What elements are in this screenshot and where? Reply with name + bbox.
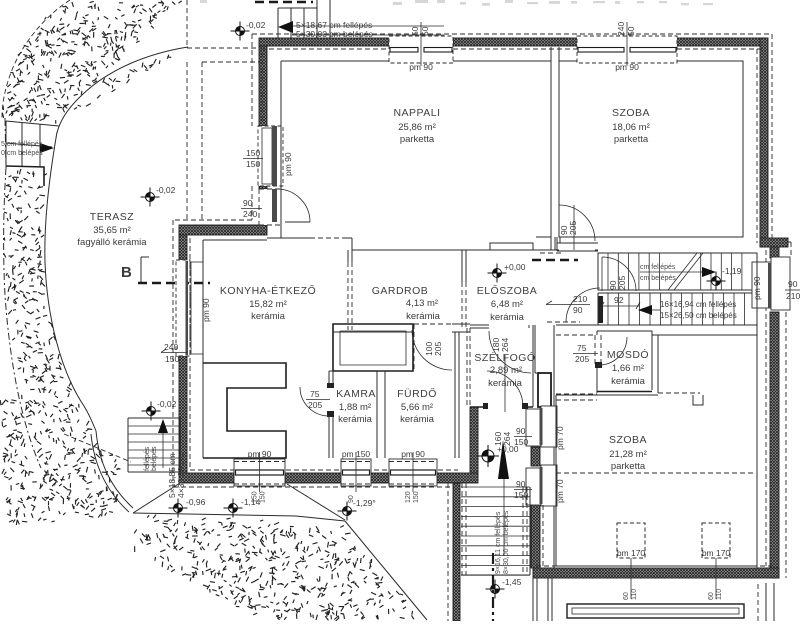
svg-text:-0,96: -0,96 [186, 497, 206, 507]
svg-text:KONYHA-ÉTKEZŐ: KONYHA-ÉTKEZŐ [220, 283, 316, 297]
svg-text:205: 205 [575, 354, 589, 364]
svg-text:4×30,00 cm: 4×30,00 cm [176, 453, 186, 498]
svg-text:SZOBA: SZOBA [609, 434, 647, 446]
svg-text:bm 170: bm 170 [702, 548, 731, 558]
svg-text:60: 60 [623, 592, 630, 600]
svg-text:bm 170: bm 170 [617, 548, 646, 558]
svg-text:kerámia: kerámia [251, 311, 286, 322]
svg-text:TERASZ: TERASZ [90, 211, 135, 223]
svg-text:210: 210 [786, 291, 800, 301]
svg-text:pm 90: pm 90 [409, 62, 433, 72]
svg-text:1,66 m²: 1,66 m² [612, 363, 644, 374]
svg-text:90: 90 [516, 479, 526, 489]
svg-text:21,28 m²: 21,28 m² [609, 449, 647, 460]
svg-text:60: 60 [708, 592, 715, 600]
svg-text:120: 120 [405, 491, 412, 503]
svg-text:parketta: parketta [400, 134, 435, 145]
svg-text:205: 205 [568, 221, 578, 235]
svg-text:75: 75 [577, 343, 587, 353]
svg-text:-0,02: -0,02 [156, 185, 176, 195]
svg-text:150: 150 [246, 148, 260, 158]
svg-text:pm 90: pm 90 [615, 62, 639, 72]
svg-text:-1,29°: -1,29° [353, 498, 376, 508]
svg-text:50: 50 [420, 26, 430, 36]
svg-text:50: 50 [410, 26, 420, 36]
svg-text:-0,02: -0,02 [157, 399, 177, 409]
svg-text:0 cm belépés: 0 cm belépés [1, 150, 43, 157]
svg-text:75: 75 [310, 389, 320, 399]
svg-text:SZOBA: SZOBA [612, 107, 650, 119]
svg-text:90: 90 [516, 426, 526, 436]
svg-text:90: 90 [573, 305, 583, 315]
svg-text:fellépés: fellépés [144, 446, 151, 471]
svg-text:pm 90: pm 90 [283, 152, 293, 176]
svg-text:cm belépés: cm belépés [640, 275, 676, 282]
svg-text:90: 90 [788, 279, 798, 289]
svg-text:150: 150 [246, 159, 260, 169]
svg-text:kerámia: kerámia [338, 414, 373, 425]
svg-text:205: 205 [433, 342, 443, 356]
svg-text:-1,45: -1,45 [502, 577, 522, 587]
svg-text:FÜRDŐ: FÜRDŐ [397, 386, 437, 400]
svg-text:kerámia: kerámia [400, 414, 435, 425]
svg-text:parketta: parketta [614, 134, 649, 145]
svg-text:18,06 m²: 18,06 m² [612, 122, 650, 133]
svg-text:5 cm fellépés: 5 cm fellépés [1, 141, 43, 148]
svg-text:210: 210 [573, 294, 587, 304]
svg-text:KAMRA: KAMRA [336, 388, 376, 400]
svg-text:35,65 m²: 35,65 m² [93, 225, 131, 236]
svg-text:6,48 m²: 6,48 m² [491, 299, 523, 310]
svg-text:kerámia: kerámia [406, 311, 441, 322]
svg-text:1,88 m²: 1,88 m² [339, 402, 371, 413]
svg-text:+0,00: +0,00 [504, 262, 526, 272]
svg-text:50: 50 [626, 26, 636, 36]
svg-text:-1,14: -1,14 [241, 497, 261, 507]
svg-text:8×30,00 cm belépés: 8×30,00 cm belépés [503, 510, 510, 574]
svg-text:205: 205 [308, 400, 322, 410]
svg-text:4,13 m²: 4,13 m² [406, 298, 438, 309]
svg-text:90: 90 [243, 198, 253, 208]
svg-text:cm fellépés: cm fellépés [640, 264, 676, 271]
svg-text:kerámia: kerámia [611, 376, 646, 387]
svg-text:kerámia: kerámia [490, 312, 525, 323]
svg-text:240: 240 [164, 342, 178, 352]
svg-text:110: 110 [631, 589, 638, 600]
svg-text:B: B [121, 264, 132, 281]
svg-text:240: 240 [616, 22, 626, 36]
svg-text:fagyálló kerámia: fagyálló kerámia [77, 237, 147, 248]
svg-text:5,66 m²: 5,66 m² [401, 402, 433, 413]
svg-text:belépés: belépés [151, 446, 158, 471]
svg-text:150: 150 [413, 491, 420, 503]
svg-text:15×26,50 cm belépés: 15×26,50 cm belépés [660, 311, 737, 320]
svg-text:92: 92 [614, 295, 624, 305]
svg-text:-0,02: -0,02 [246, 20, 266, 30]
svg-text:ELŐSZOBA: ELŐSZOBA [477, 283, 538, 297]
svg-text:205: 205 [617, 276, 627, 290]
svg-text:150: 150 [260, 491, 267, 503]
svg-text:NAPPALI: NAPPALI [393, 107, 440, 119]
svg-text:240: 240 [243, 209, 257, 219]
svg-text:264: 264 [500, 338, 510, 352]
svg-text:150: 150 [514, 437, 528, 447]
svg-text:GARDROB: GARDROB [372, 285, 429, 297]
svg-text:9×16,11 cm fellépés: 9×16,11 cm fellépés [495, 511, 502, 574]
svg-text:-1,19: -1,19 [722, 266, 742, 276]
svg-text:25,86 m²: 25,86 m² [398, 122, 436, 133]
svg-text:150: 150 [165, 354, 179, 364]
svg-text:16×16,94 cm fellépés: 16×16,94 cm fellépés [660, 300, 736, 309]
svg-text:parketta: parketta [611, 461, 646, 472]
svg-text:15,82 m²: 15,82 m² [249, 299, 287, 310]
svg-text:110: 110 [716, 589, 723, 600]
svg-text:MOSDÓ: MOSDÓ [607, 348, 649, 361]
svg-text:150: 150 [514, 490, 528, 500]
svg-text:2,89 m²: 2,89 m² [490, 365, 522, 376]
